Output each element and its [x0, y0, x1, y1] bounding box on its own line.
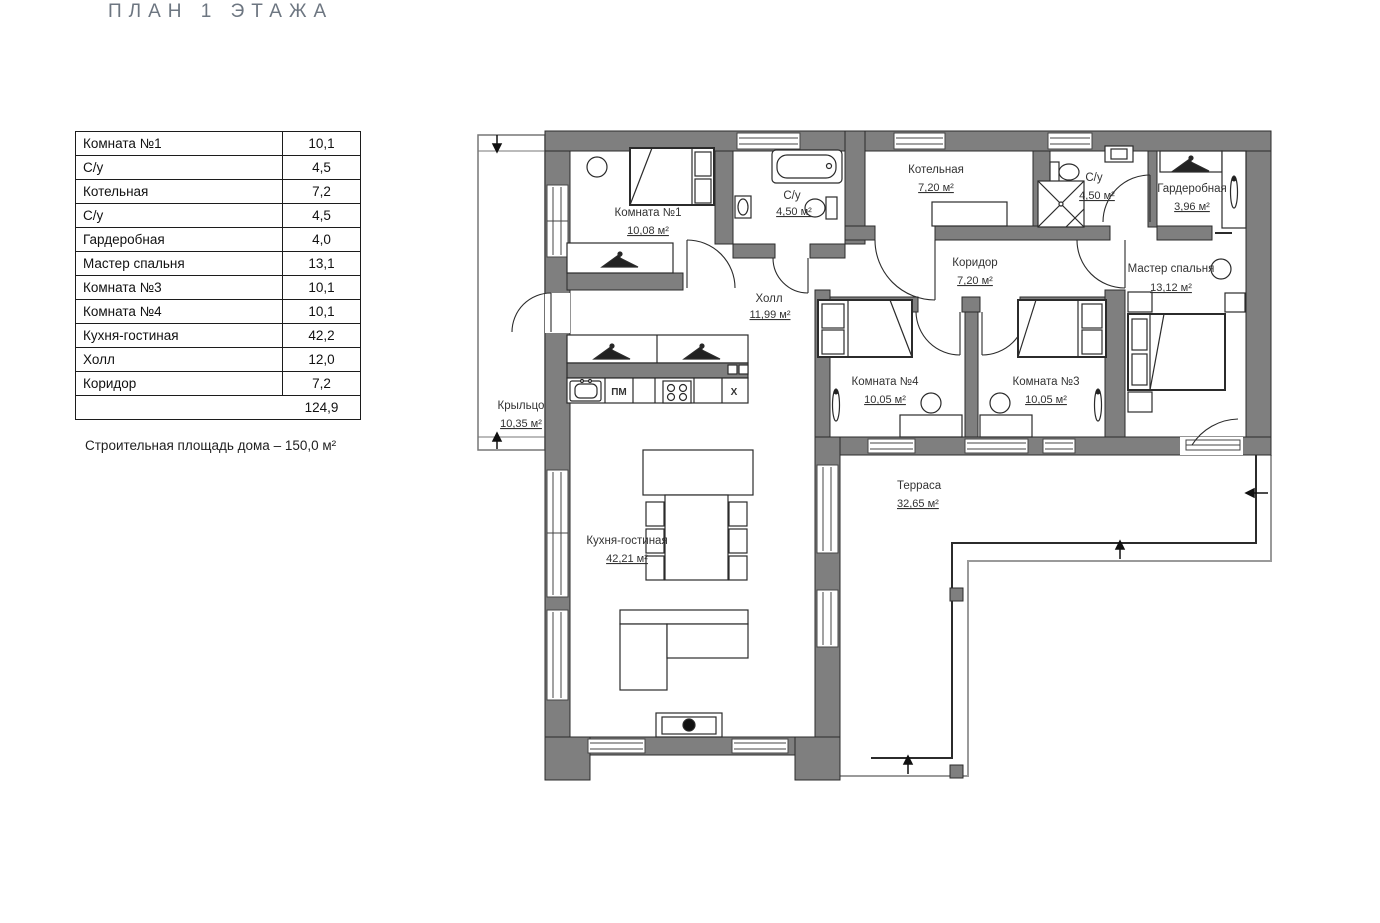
room-name-cell: Мастер спальня [76, 252, 282, 275]
room-area-bedroom3: 10,05 м² [1025, 394, 1067, 406]
room-area-master: 13,12 м² [1150, 282, 1192, 294]
room-area-cell: 7,2 [282, 372, 360, 395]
table-row: С/у4,5 [76, 204, 360, 228]
table-row: Гардеробная4,0 [76, 228, 360, 252]
table-row: Комната №410,1 [76, 300, 360, 324]
room-area-boiler: 7,20 м² [918, 182, 954, 194]
room-area-kitchen-living: 42,21 м² [606, 553, 648, 565]
room-name-cell: Котельная [76, 180, 282, 203]
room-area-corridor: 7,20 м² [957, 275, 993, 287]
building-area-note: Строительная площадь дома – 150,0 м² [85, 438, 336, 453]
room-label-bathroom1: С/у [783, 190, 801, 202]
room-label-bedroom4: Комната №4 [852, 376, 920, 388]
table-row: Комната №110,1 [76, 132, 360, 156]
room-area-cell: 4,0 [282, 228, 360, 251]
room-name-cell: С/у [76, 156, 282, 179]
room-area-cell: 10,1 [282, 300, 360, 323]
window-icon [1043, 439, 1075, 453]
room-area-bedroom4: 10,05 м² [864, 394, 906, 406]
total-area-cell: 124,9 [283, 396, 360, 419]
window-icon [732, 739, 788, 753]
room-area-hall: 11,99 м² [750, 309, 791, 321]
bedroom3-furniture [980, 300, 1106, 437]
room-area-cell: 4,5 [282, 156, 360, 179]
dishwasher-label: ПМ [611, 387, 627, 398]
table-total-row: 124,9 [76, 396, 360, 419]
room-label-kitchen-living: Кухня-гостиная [586, 535, 667, 547]
table-row: Котельная7,2 [76, 180, 360, 204]
room-name-cell: Гардеробная [76, 228, 282, 251]
door-arc [773, 258, 808, 293]
window-icon [965, 439, 1028, 453]
room-area-cell: 10,1 [282, 132, 360, 155]
table-row: Мастер спальня13,1 [76, 252, 360, 276]
room-area-terrace: 32,65 м² [897, 498, 939, 510]
room-area-table: Комната №110,1 С/у4,5 Котельная7,2 С/у4,… [75, 131, 361, 420]
room-name-cell: Коридор [76, 372, 282, 395]
kitchen-island [643, 450, 753, 495]
door-arc [875, 240, 935, 300]
room-area-wardrobe: 3,96 м² [1174, 201, 1210, 213]
room-area-cell: 10,1 [282, 276, 360, 299]
room-area-cell: 13,1 [282, 252, 360, 275]
fridge-label: Х [731, 387, 738, 398]
room-area-porch: 10,35 м² [500, 418, 542, 430]
room-name-cell: Комната №4 [76, 300, 282, 323]
room-label-boiler: Котельная [908, 164, 964, 176]
bedroom4-furniture [818, 300, 962, 437]
window-icon [817, 465, 838, 553]
tv-stand [656, 713, 722, 737]
room-area-cell: 12,0 [282, 348, 360, 371]
window-icon [547, 470, 568, 597]
room-label-master: Мастер спальня [1128, 263, 1215, 275]
room-area-bedroom1: 10,08 м² [627, 225, 669, 237]
room-name-cell: С/у [76, 204, 282, 227]
room-label-hall: Холл [755, 293, 782, 305]
kitchen-units [567, 363, 748, 403]
window-icon [547, 185, 568, 257]
floor-plan-page: ПЛАН 1 ЭТАЖА Комната №110,1 С/у4,5 Котел… [0, 0, 1380, 923]
room-label-corridor: Коридор [952, 257, 997, 269]
window-icon [894, 133, 945, 149]
room-label-bathroom2: С/у [1085, 172, 1103, 184]
room-label-bedroom3: Комната №3 [1013, 376, 1080, 388]
door-arc [916, 312, 960, 355]
door-arc [687, 240, 735, 288]
page-title: ПЛАН 1 ЭТАЖА [108, 1, 333, 23]
window-icon [868, 439, 915, 453]
table-row: Кухня-гостиная42,2 [76, 324, 360, 348]
table-row: Комната №310,1 [76, 276, 360, 300]
window-icon [737, 133, 800, 149]
table-row: С/у4,5 [76, 156, 360, 180]
room-area-cell: 42,2 [282, 324, 360, 347]
boiler-room-bench [932, 202, 1007, 226]
room-area-bathroom1: 4,50 м² [776, 206, 812, 218]
floor-plan-drawing: Комната №1 10,08 м² С/у 4,50 м² Котельна… [460, 115, 1380, 795]
stove-icon [663, 381, 691, 403]
room-label-terrace: Терраса [897, 480, 942, 492]
table-row: Коридор7,2 [76, 372, 360, 396]
window-icon [547, 610, 568, 700]
room-area-bathroom2: 4,50 м² [1079, 190, 1115, 202]
sink-icon [570, 380, 601, 402]
window-icon [1048, 133, 1092, 149]
room-label-bedroom1: Комната №1 [615, 207, 682, 219]
terrace-door-threshold [1180, 437, 1243, 455]
room-area-cell: 7,2 [282, 180, 360, 203]
window-icon [817, 590, 838, 647]
sofa [620, 610, 748, 690]
room-area-cell: 4,5 [282, 204, 360, 227]
room-name-cell: Кухня-гостиная [76, 324, 282, 347]
hall-wardrobe [567, 335, 748, 363]
table-row: Холл12,0 [76, 348, 360, 372]
door-arc [1077, 240, 1125, 288]
room-name-cell: Холл [76, 348, 282, 371]
window-icon [588, 739, 645, 753]
room-name-cell: Комната №1 [76, 132, 282, 155]
room-name-cell: Комната №3 [76, 276, 282, 299]
room-label-wardrobe: Гардеробная [1157, 183, 1227, 195]
room-label-porch: Крыльцо [498, 400, 545, 412]
